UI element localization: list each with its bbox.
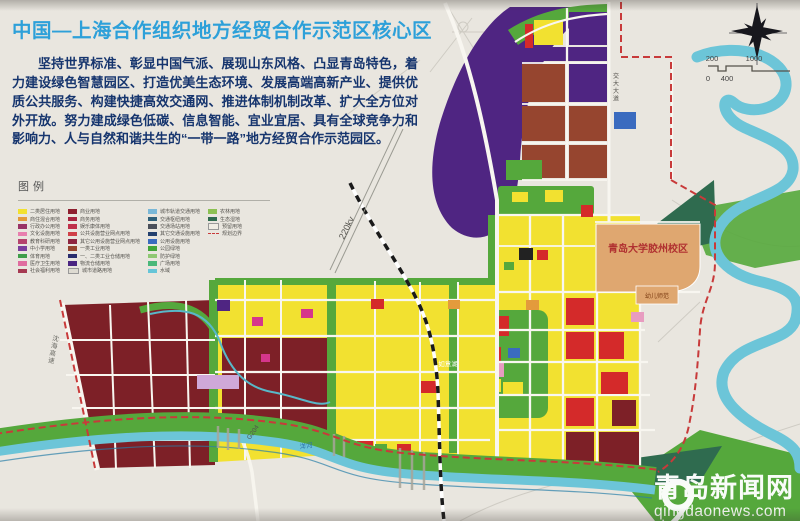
legend-item: 商务用地	[68, 215, 140, 222]
legend-item: 城市轨道交通用地	[148, 208, 200, 215]
legend-swatch	[68, 268, 79, 275]
legend-item: 娱乐康体用地	[68, 223, 140, 230]
legend-label: 农林用地	[220, 208, 240, 215]
legend-swatch	[68, 239, 77, 244]
legend-label: 物流仓储用地	[80, 260, 110, 267]
legend-label: 交通场站用地	[160, 223, 190, 230]
legend-columns: 二类居住用地商住混合用地行政办公用地文化设施用地教育科研用地中小学用地体育用地医…	[18, 208, 318, 275]
legend-item: 体育用地	[18, 252, 60, 259]
legend-item: 农林用地	[208, 208, 242, 215]
legend-item: 水域	[148, 267, 200, 274]
legend-column-1: 二类居住用地商住混合用地行政办公用地文化设施用地教育科研用地中小学用地体育用地医…	[18, 208, 60, 275]
legend-swatch	[148, 232, 157, 237]
legend-label: 医疗卫生用地	[30, 260, 60, 267]
legend-swatch	[68, 254, 77, 259]
legend-label: 广场用地	[160, 260, 180, 267]
legend-item: 生态湿地	[208, 215, 242, 222]
legend-label: 娱乐康体用地	[80, 223, 110, 230]
scale-200: 200	[706, 54, 719, 63]
legend-label: 公园绿地	[160, 245, 180, 252]
legend-swatch	[208, 217, 217, 222]
legend-swatch	[148, 269, 157, 274]
legend-item: 公用设施用地	[148, 238, 200, 245]
legend-item: 社会福利用地	[18, 267, 60, 274]
legend-swatch	[18, 217, 27, 222]
legend-item: 公园绿地	[148, 245, 200, 252]
legend: 图例 二类居住用地商住混合用地行政办公用地文化设施用地教育科研用地中小学用地体育…	[18, 178, 318, 275]
legend-item: 教育科研用地	[18, 238, 60, 245]
legend-label: 二类居住用地	[30, 208, 60, 215]
info-panel: 中国—上海合作组织地方经贸合作示范区核心区 坚持世界标准、彰显中国气派、展现山东…	[12, 14, 432, 149]
legend-item: 文化设施用地	[18, 230, 60, 237]
legend-item: 医疗卫生用地	[18, 260, 60, 267]
legend-swatch	[18, 269, 27, 274]
kindergarten-label: 幼儿师范	[645, 292, 669, 300]
campus-label: 青岛大学胶州校区	[608, 242, 688, 255]
legend-item: 二类居住用地	[18, 208, 60, 215]
legend-swatch	[68, 246, 77, 251]
legend-swatch	[18, 224, 27, 229]
university-campus-block	[596, 224, 700, 292]
legend-item: 城市道路用地	[68, 267, 140, 274]
legend-swatch	[18, 254, 27, 259]
legend-swatch	[148, 246, 157, 251]
legend-item: 其它公用设施营业网点用地	[68, 238, 140, 245]
legend-label: 一类工业用地	[80, 245, 110, 252]
watermark: 青岛新闻网 qingdaonews.com	[654, 475, 794, 520]
legend-swatch	[18, 239, 27, 244]
legend-label: 行政办公用地	[30, 223, 60, 230]
legend-swatch	[18, 246, 27, 251]
legend-item: 交通场站用地	[148, 223, 200, 230]
legend-item: 行政办公用地	[18, 223, 60, 230]
legend-item: 中小学用地	[18, 245, 60, 252]
legend-column-2: 商业用地商务用地娱乐康体用地公共设施营业网点用地其它公用设施营业网点用地一类工业…	[68, 208, 140, 275]
scale-0: 0	[706, 74, 710, 83]
legend-label: 商务用地	[80, 216, 100, 223]
description-paragraph: 坚持世界标准、彰显中国气派、展现山东风格、凸显青岛特色，着力建设绿色智慧园区、打…	[12, 55, 418, 149]
scale-1000: 1000	[746, 54, 763, 63]
legend-label: 公共设施营业网点用地	[80, 230, 130, 237]
legend-label: 水域	[160, 267, 170, 274]
legend-item: 其它交通设施用地	[148, 230, 200, 237]
legend-item: 交通枢纽用地	[148, 215, 200, 222]
legend-label: 交通枢纽用地	[160, 216, 190, 223]
legend-item: 商业用地	[68, 208, 140, 215]
qingdaonews-logo-icon	[654, 475, 700, 521]
legend-label: 文化设施用地	[30, 230, 60, 237]
legend-label: 商业用地	[80, 208, 100, 215]
legend-label: 城市道路用地	[82, 267, 112, 274]
legend-label: 教育科研用地	[30, 238, 60, 245]
legend-swatch	[18, 261, 27, 266]
legend-item: 广场用地	[148, 260, 200, 267]
legend-swatch	[18, 209, 27, 214]
legend-swatch	[148, 254, 157, 259]
legend-item: 预留用地	[208, 223, 242, 230]
legend-swatch	[208, 233, 219, 234]
legend-item: 商住混合用地	[18, 215, 60, 222]
legend-swatch	[208, 209, 217, 214]
legend-divider	[18, 200, 270, 201]
legend-swatch	[68, 261, 77, 266]
legend-label: 规划边界	[222, 230, 242, 237]
scale-400: 400	[721, 74, 734, 83]
legend-label: 社会福利用地	[30, 267, 60, 274]
legend-label: 商住混合用地	[30, 216, 60, 223]
page-title: 中国—上海合作组织地方经贸合作示范区核心区	[12, 14, 432, 43]
legend-label: 一、二类工业仓储用地	[80, 253, 130, 260]
legend-swatch	[68, 224, 77, 229]
legend-swatch	[68, 217, 77, 222]
legend-column-4: 农林用地生态湿地预留用地规划边界	[208, 208, 242, 275]
legend-label: 其它交通设施用地	[160, 230, 200, 237]
legend-label: 生态湿地	[220, 216, 240, 223]
legend-swatch	[68, 232, 77, 237]
legend-item: 公共设施营业网点用地	[68, 230, 140, 237]
legend-column-3: 城市轨道交通用地交通枢纽用地交通场站用地其它交通设施用地公用设施用地公园绿地防护…	[148, 208, 200, 275]
legend-item: 一、二类工业仓储用地	[68, 252, 140, 259]
legend-swatch	[18, 232, 27, 237]
transport-hub-parcel	[614, 112, 636, 129]
legend-title: 图例	[18, 178, 318, 194]
legend-swatch	[208, 223, 219, 230]
legend-swatch	[148, 224, 157, 229]
east-avenue-label: 交大大道	[613, 72, 619, 103]
legend-item: 防护绿地	[148, 252, 200, 259]
legend-label: 体育用地	[30, 253, 50, 260]
legend-label: 城市轨道交通用地	[160, 208, 200, 215]
legend-swatch	[148, 239, 157, 244]
legend-label: 公用设施用地	[160, 238, 190, 245]
legend-item: 物流仓储用地	[68, 260, 140, 267]
legend-label: 预留用地	[222, 223, 242, 230]
legend-item: 规划边界	[208, 230, 242, 237]
planning-map-photo: 青岛大学胶州校区 幼儿师范 如意湖 220kv G204 洋河 沈海高速 交大大…	[0, 0, 800, 521]
legend-label: 中小学用地	[30, 245, 55, 252]
legend-swatch	[148, 209, 157, 214]
legend-item: 一类工业用地	[68, 245, 140, 252]
legend-swatch	[148, 261, 157, 266]
legend-swatch	[68, 209, 77, 214]
legend-label: 其它公用设施营业网点用地	[80, 238, 140, 245]
legend-label: 防护绿地	[160, 253, 180, 260]
legend-swatch	[148, 217, 157, 222]
lake-label: 如意湖	[438, 359, 458, 368]
